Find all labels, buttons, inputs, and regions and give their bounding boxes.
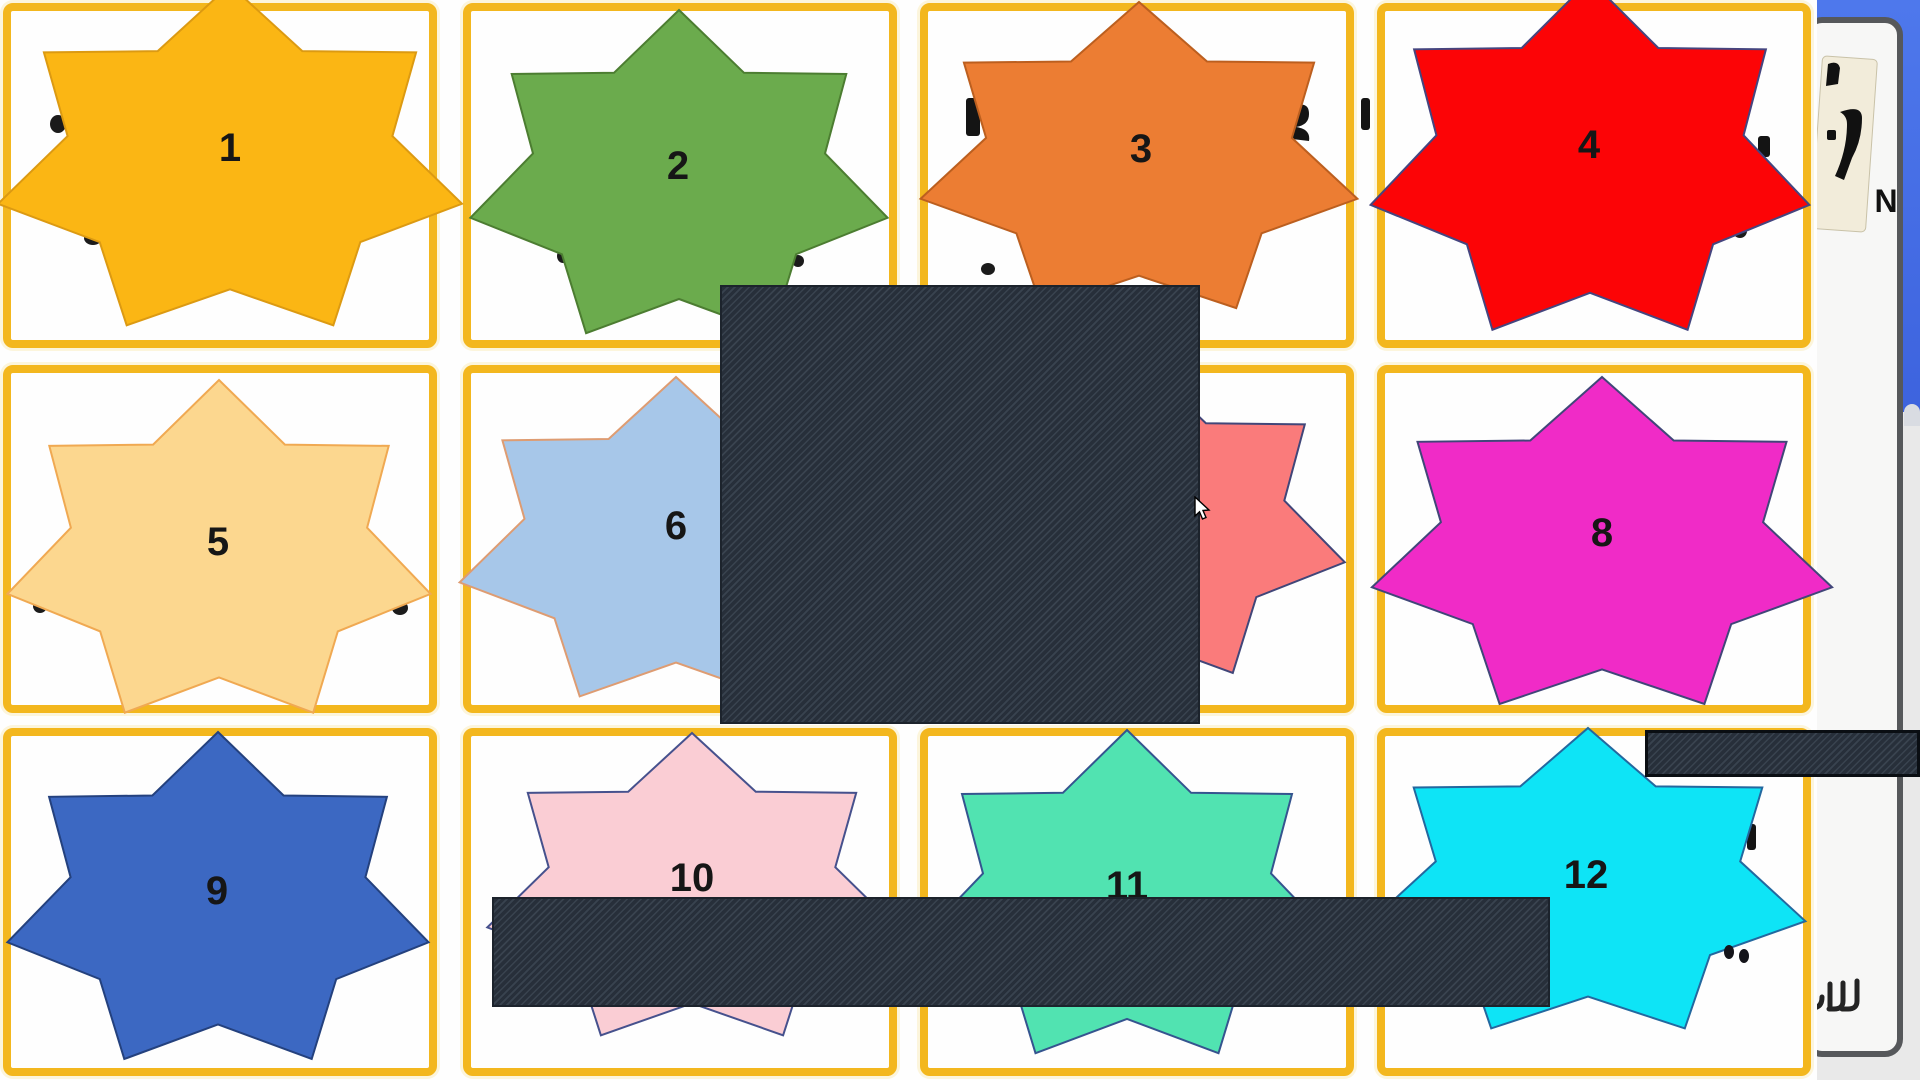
svg-text:5: 5 [207, 520, 229, 564]
svg-text:10: 10 [670, 856, 715, 900]
svg-text:1: 1 [219, 126, 241, 170]
svg-text:2: 2 [667, 144, 689, 188]
svg-text:4: 4 [1578, 123, 1601, 167]
svg-text:8: 8 [1591, 511, 1613, 555]
svg-text:6: 6 [665, 504, 687, 548]
svg-text:3: 3 [1130, 127, 1152, 171]
svg-text:9: 9 [206, 869, 228, 913]
svg-text:12: 12 [1564, 853, 1609, 897]
